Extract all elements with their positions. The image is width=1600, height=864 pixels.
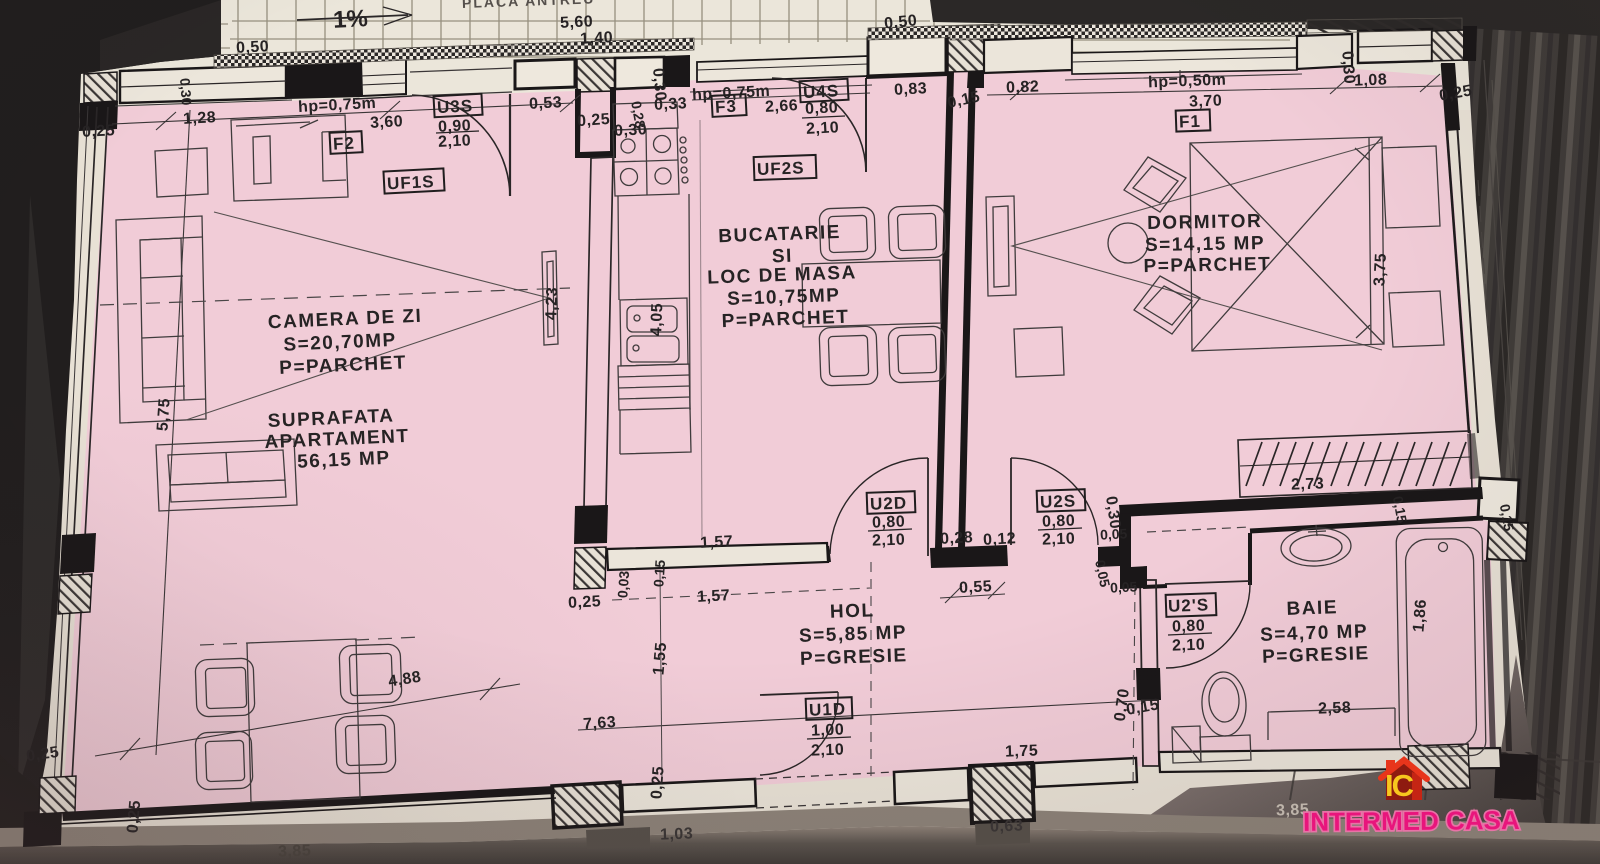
svg-text:INTERMED CASA: INTERMED CASA [1303, 805, 1520, 837]
svg-text:IC: IC [1385, 768, 1414, 803]
